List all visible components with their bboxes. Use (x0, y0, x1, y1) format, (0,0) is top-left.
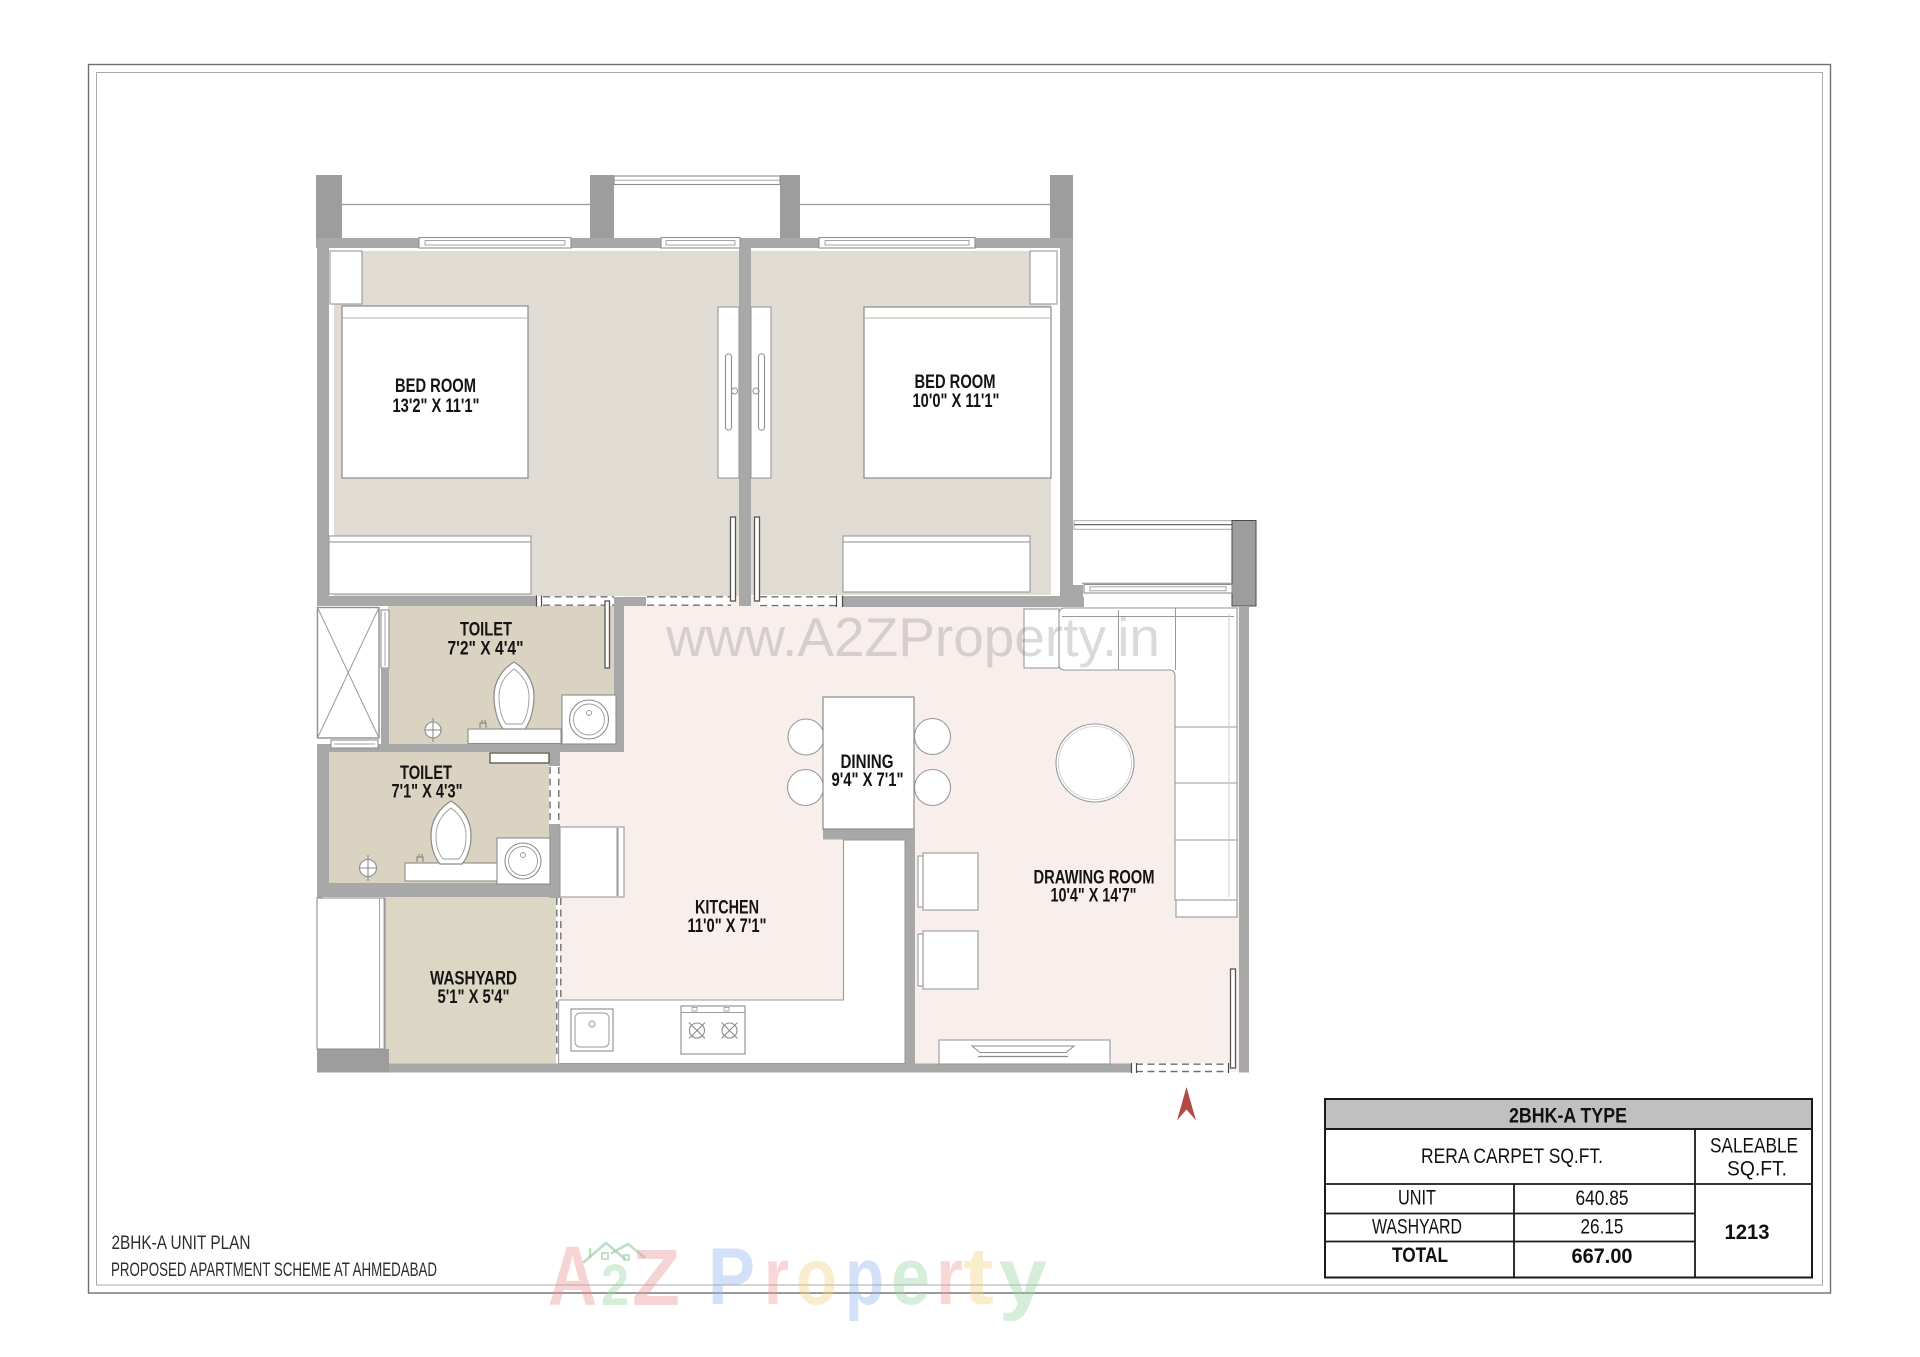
svg-text:2: 2 (601, 1253, 629, 1318)
svg-text:A: A (548, 1229, 597, 1323)
svg-text:SQ.FT.: SQ.FT. (1727, 1158, 1787, 1181)
svg-text:5'1" X 5'4": 5'1" X 5'4" (438, 987, 510, 1008)
svg-text:BED ROOM: BED ROOM (915, 372, 996, 393)
svg-text:10'0" X 11'1": 10'0" X 11'1" (913, 391, 1000, 412)
svg-text:WASHYARD: WASHYARD (1372, 1216, 1462, 1239)
svg-text:y: y (999, 1232, 1047, 1322)
svg-text:11'0" X 7'1": 11'0" X 7'1" (688, 916, 767, 937)
svg-text:13'2" X 11'1": 13'2" X 11'1" (393, 396, 480, 417)
svg-text:RERA CARPET SQ.FT.: RERA CARPET SQ.FT. (1421, 1145, 1603, 1168)
svg-text:SALEABLE: SALEABLE (1710, 1135, 1798, 1158)
svg-text:9'4" X 7'1": 9'4" X 7'1" (832, 770, 904, 791)
svg-text:2BHK-A UNIT PLAN: 2BHK-A UNIT PLAN (112, 1232, 251, 1254)
svg-text:PROPOSED APARTMENT SCHEME AT A: PROPOSED APARTMENT SCHEME AT AHMEDABAD (111, 1259, 437, 1281)
svg-text:640.85: 640.85 (1576, 1187, 1629, 1210)
svg-text:BED ROOM: BED ROOM (395, 376, 476, 397)
svg-text:o: o (796, 1232, 837, 1322)
svg-text:www.A2ZProperty.in: www.A2ZProperty.in (665, 606, 1160, 668)
svg-text:7'2" X 4'4": 7'2" X 4'4" (448, 639, 524, 660)
svg-text:10'4" X 14'7": 10'4" X 14'7" (1051, 886, 1137, 907)
svg-text:Z: Z (632, 1233, 680, 1322)
svg-text:1213: 1213 (1725, 1221, 1770, 1244)
svg-text:26.15: 26.15 (1581, 1216, 1624, 1239)
svg-text:TOTAL: TOTAL (1392, 1244, 1448, 1267)
svg-text:7'1" X 4'3": 7'1" X 4'3" (392, 782, 463, 803)
svg-text:t: t (963, 1232, 994, 1322)
svg-text:r: r (764, 1232, 789, 1322)
svg-text:667.00: 667.00 (1572, 1245, 1633, 1268)
svg-text:e: e (891, 1232, 930, 1322)
svg-text:TOILET: TOILET (460, 620, 512, 641)
svg-text:p: p (845, 1232, 884, 1322)
svg-text:UNIT: UNIT (1398, 1187, 1436, 1210)
svg-text:r: r (936, 1232, 963, 1322)
svg-text:2BHK-A TYPE: 2BHK-A TYPE (1509, 1105, 1627, 1128)
svg-text:P: P (708, 1232, 755, 1322)
